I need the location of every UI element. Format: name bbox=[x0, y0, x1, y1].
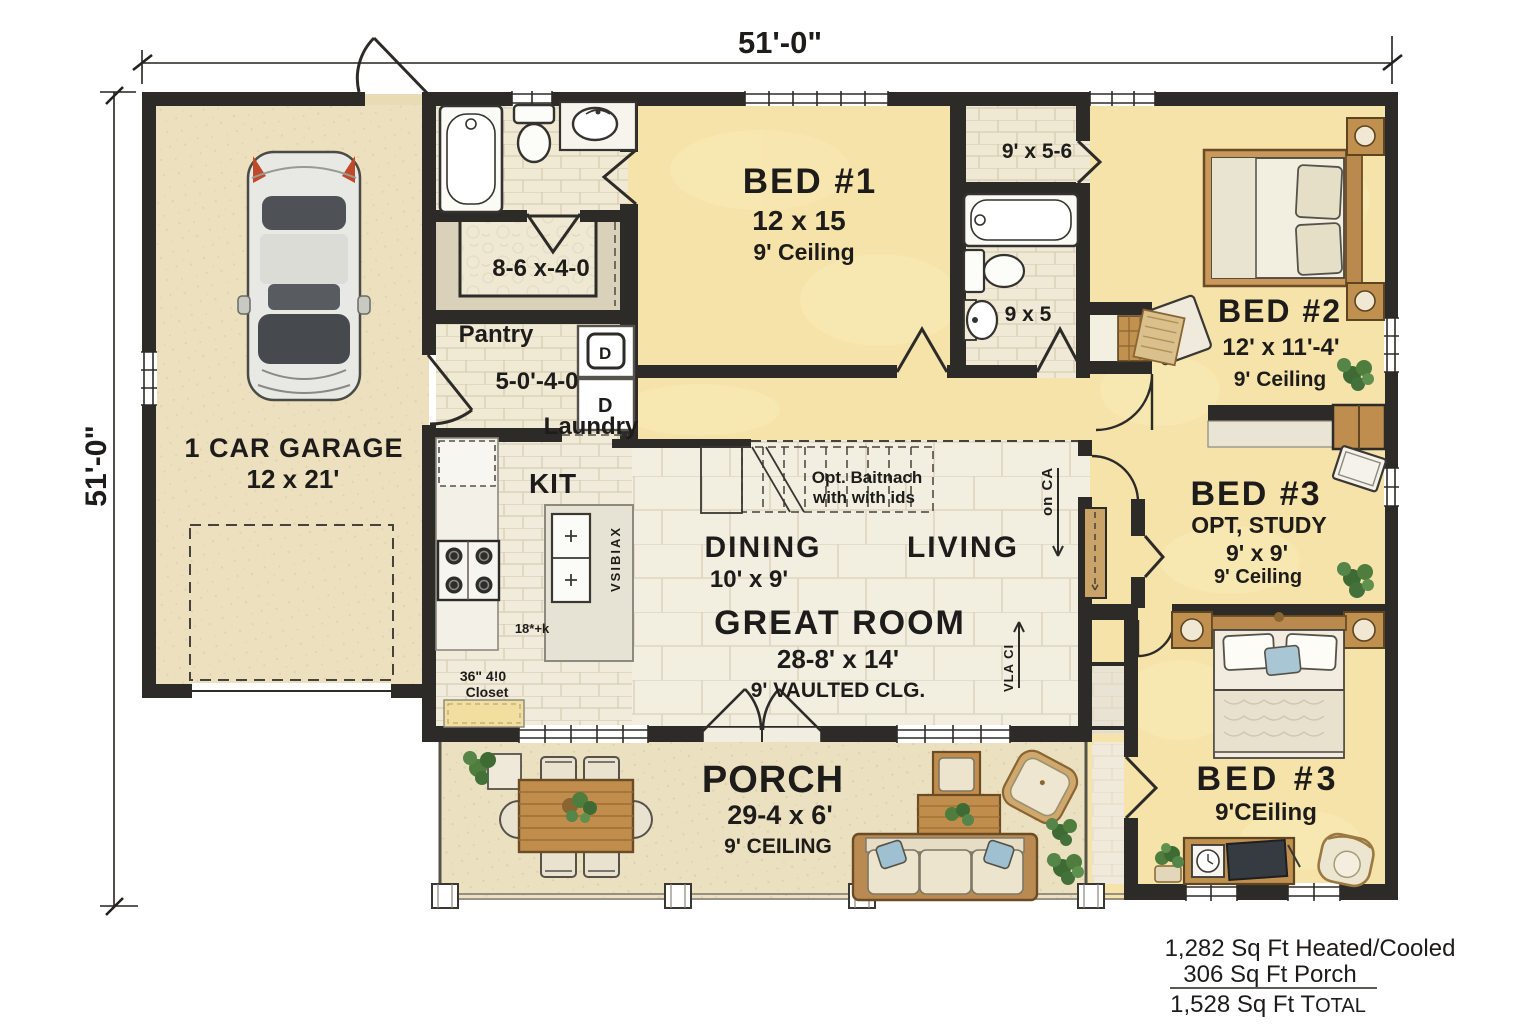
svg-text:51'-0": 51'-0" bbox=[80, 425, 113, 506]
svg-text:BED #3: BED #3 bbox=[1190, 475, 1321, 513]
svg-text:VLA CI: VLA CI bbox=[1001, 644, 1016, 692]
svg-text:BED #3: BED #3 bbox=[1196, 760, 1339, 798]
svg-text:9' Ceiling: 9' Ceiling bbox=[1234, 368, 1327, 391]
svg-text:Pantry: Pantry bbox=[459, 321, 534, 348]
svg-text:KIT: KIT bbox=[529, 468, 577, 499]
svg-text:on CA: on CA bbox=[1039, 467, 1056, 516]
svg-text:PORCH: PORCH bbox=[702, 759, 844, 801]
svg-text:29-4 x 6': 29-4 x 6' bbox=[727, 800, 833, 830]
svg-text:Opt. Baitnach: Opt. Baitnach bbox=[812, 468, 923, 487]
svg-text:36" 4!0: 36" 4!0 bbox=[460, 668, 507, 684]
svg-text:BED #2: BED #2 bbox=[1218, 293, 1342, 329]
svg-text:D: D bbox=[599, 344, 611, 363]
svg-text:9 x 5: 9 x 5 bbox=[1005, 303, 1052, 326]
svg-text:9' CEILING: 9' CEILING bbox=[724, 835, 832, 858]
svg-text:VSIBIAX: VSIBIAX bbox=[608, 526, 623, 592]
svg-text:9' Ceiling: 9' Ceiling bbox=[1214, 566, 1302, 588]
svg-text:12' x 11'-4': 12' x 11'-4' bbox=[1222, 334, 1339, 361]
svg-text:9' VAULTED CLG.: 9' VAULTED CLG. bbox=[751, 679, 926, 702]
svg-text:5-0'-4-0: 5-0'-4-0 bbox=[495, 368, 578, 395]
svg-text:DINING: DINING bbox=[705, 531, 822, 564]
svg-text:12 x 21': 12 x 21' bbox=[247, 464, 340, 494]
svg-text:Laundry: Laundry bbox=[544, 413, 639, 440]
svg-text:with with ids: with with ids bbox=[812, 488, 915, 507]
svg-text:1,282 Sq Ft Heated/Cooled: 1,282 Sq Ft Heated/Cooled bbox=[1165, 935, 1456, 962]
svg-text:306 Sq Ft Porch: 306 Sq Ft Porch bbox=[1183, 961, 1356, 988]
svg-text:9' x 5-6: 9' x 5-6 bbox=[1002, 140, 1072, 163]
svg-text:BED #1: BED #1 bbox=[743, 162, 878, 201]
svg-text:OPT, STUDY: OPT, STUDY bbox=[1191, 512, 1326, 538]
svg-text:28-8' x 14': 28-8' x 14' bbox=[777, 644, 899, 674]
svg-text:Closet: Closet bbox=[466, 684, 509, 700]
svg-text:8-6 x-4-0: 8-6 x-4-0 bbox=[492, 255, 589, 282]
svg-text:1,528 Sq Ft TOTAL: 1,528 Sq Ft TOTAL bbox=[1170, 991, 1366, 1018]
svg-text:1 CAR GARAGE: 1 CAR GARAGE bbox=[184, 433, 403, 463]
svg-text:9' Ceiling: 9' Ceiling bbox=[753, 239, 854, 265]
svg-text:GREAT ROOM: GREAT ROOM bbox=[714, 604, 966, 642]
svg-text:18*+k: 18*+k bbox=[515, 621, 550, 636]
svg-text:9'CEiling: 9'CEiling bbox=[1215, 799, 1317, 826]
svg-text:LIVING: LIVING bbox=[907, 531, 1019, 564]
svg-text:9' x 9': 9' x 9' bbox=[1226, 540, 1288, 566]
svg-text:12 x 15: 12 x 15 bbox=[752, 205, 845, 236]
svg-text:51'-0": 51'-0" bbox=[738, 25, 822, 60]
svg-text:10' x 9': 10' x 9' bbox=[710, 566, 788, 593]
